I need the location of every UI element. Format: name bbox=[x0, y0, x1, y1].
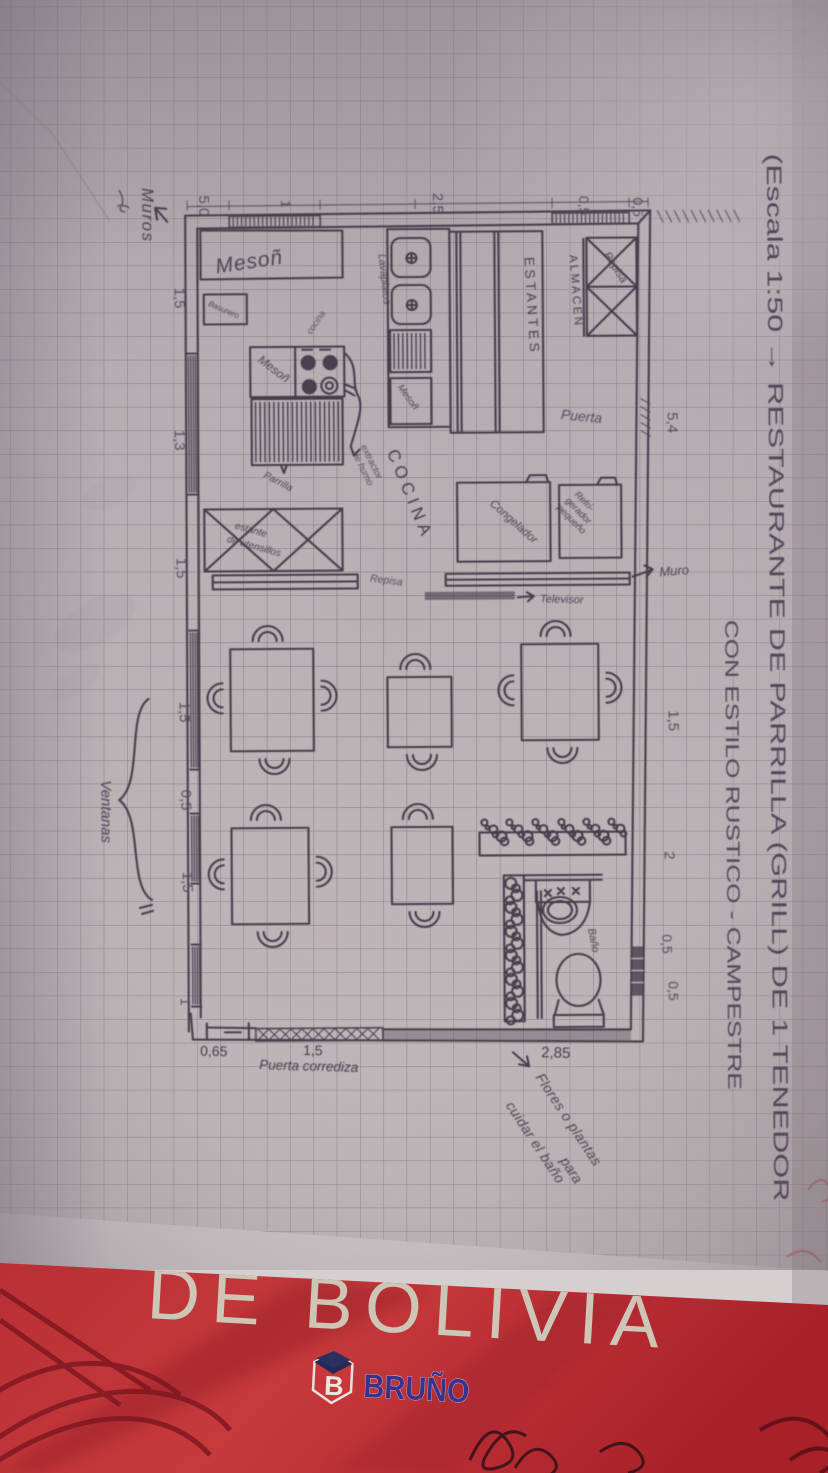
svg-text:0,65: 0,65 bbox=[200, 1043, 228, 1060]
svg-text:Puerta corrediza: Puerta corrediza bbox=[259, 1057, 359, 1075]
svg-text:BRUÑO: BRUÑO bbox=[363, 1367, 471, 1409]
svg-text:0,5: 0,5 bbox=[630, 197, 646, 217]
svg-text:2: 2 bbox=[661, 851, 678, 859]
svg-text:Muro: Muro bbox=[659, 562, 690, 579]
svg-text:Muros: Muros bbox=[138, 188, 157, 243]
svg-text:CON ESTILO RUSTICO - CAMPESTRE: CON ESTILO RUSTICO - CAMPESTRE bbox=[721, 620, 744, 1090]
svg-text:1: 1 bbox=[278, 200, 294, 208]
svg-text:2,5: 2,5 bbox=[429, 193, 446, 214]
svg-text:1,5: 1,5 bbox=[176, 702, 193, 723]
svg-text:1,5: 1,5 bbox=[171, 288, 188, 309]
svg-text:1,5: 1,5 bbox=[179, 872, 196, 893]
svg-text:5,0: 5,0 bbox=[195, 195, 212, 216]
svg-text:0,5: 0,5 bbox=[659, 934, 675, 954]
svg-text:B: B bbox=[323, 1371, 344, 1402]
svg-text:0,5: 0,5 bbox=[576, 196, 592, 216]
svg-text:2,85: 2,85 bbox=[541, 1044, 571, 1062]
svg-text:Ventanas: Ventanas bbox=[97, 780, 114, 843]
svg-text:1,5: 1,5 bbox=[173, 558, 190, 579]
svg-text:1,3: 1,3 bbox=[171, 430, 188, 451]
svg-text:Televisor: Televisor bbox=[540, 593, 585, 606]
svg-text:1,5: 1,5 bbox=[665, 710, 682, 731]
svg-text:1: 1 bbox=[178, 998, 194, 1006]
svg-text:0,5: 0,5 bbox=[177, 790, 194, 811]
svg-text:5,4: 5,4 bbox=[664, 412, 681, 433]
svg-text:1,5: 1,5 bbox=[303, 1042, 323, 1059]
svg-text:0,5: 0,5 bbox=[666, 981, 682, 1001]
